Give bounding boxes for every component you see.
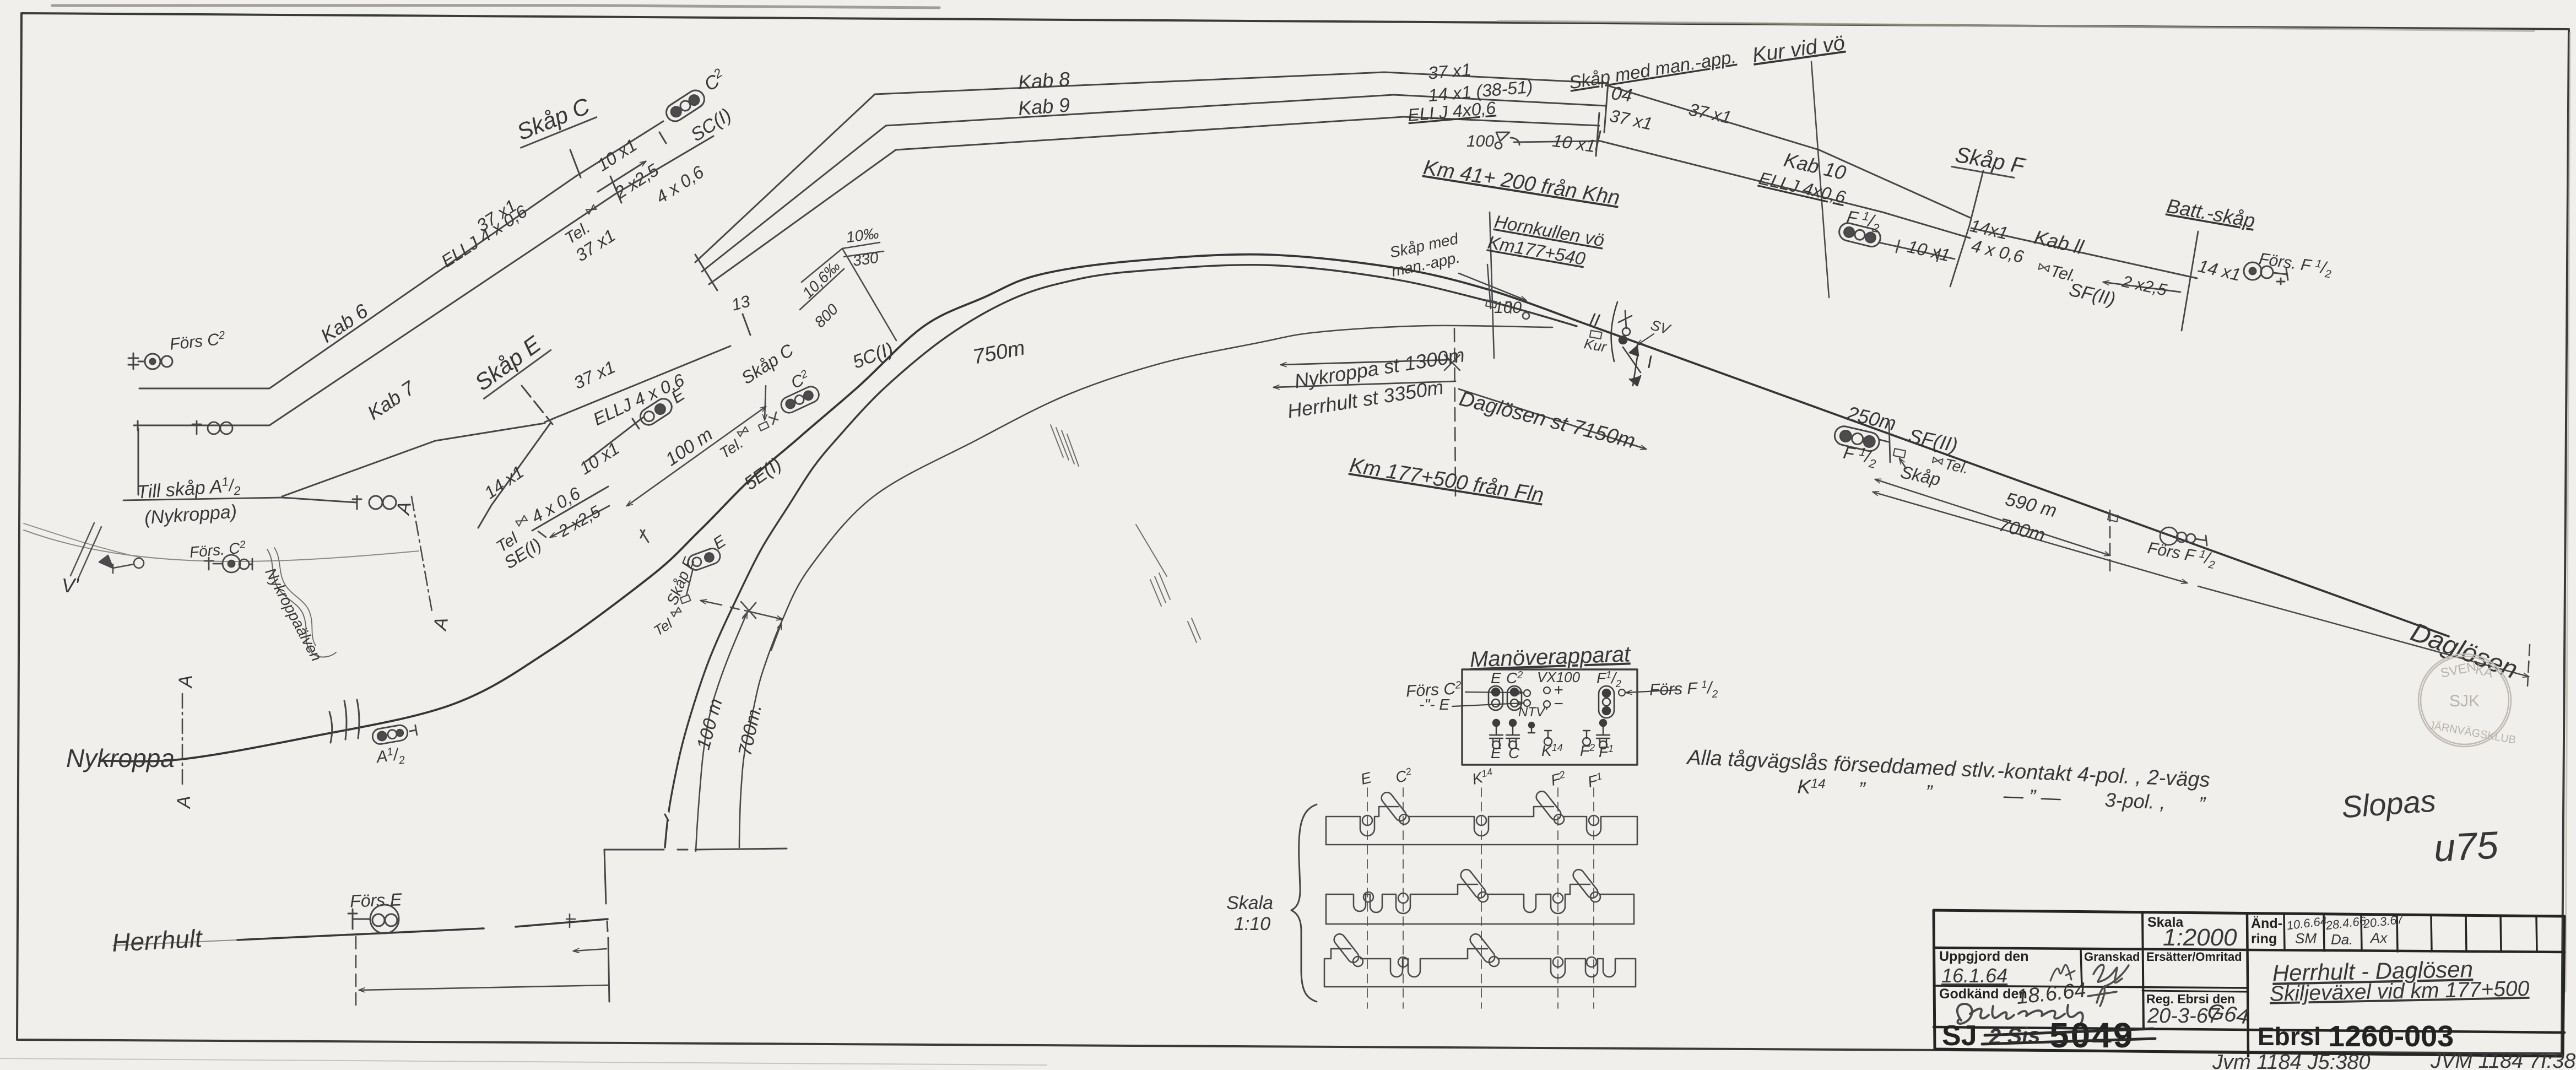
svg-text:Skåp C: Skåp C — [513, 93, 593, 145]
svg-text:Uppgjord den: Uppgjord den — [1939, 949, 2028, 964]
svg-text:2 x2,5: 2 x2,5 — [2120, 272, 2168, 300]
svg-text:18.6.64: 18.6.64 — [2015, 979, 2087, 1009]
svg-text:Km 41+ 200 från Khn: Km 41+ 200 från Khn — [1422, 156, 1621, 210]
svg-text:Jvm 1184 J5:380: Jvm 1184 J5:380 — [2212, 1051, 2371, 1070]
svg-text:5E(I): 5E(I) — [740, 453, 786, 494]
svg-text:37 x1: 37 x1 — [571, 356, 618, 393]
svg-text:SJK: SJK — [2449, 692, 2480, 710]
svg-text:10 x1: 10 x1 — [1551, 131, 1597, 156]
svg-text:Kur: Kur — [1583, 335, 1608, 355]
svg-text:A: A — [429, 615, 452, 633]
svg-text:Ax: Ax — [2369, 930, 2388, 946]
svg-text:K14: K14 — [1470, 766, 1495, 787]
svg-text:SJ: SJ — [1942, 1020, 1977, 1052]
svg-text:1260-003: 1260-003 — [2328, 1020, 2454, 1053]
svg-text:u75: u75 — [2433, 823, 2500, 869]
svg-text:Ersätter/Omritad: Ersätter/Omritad — [2146, 950, 2242, 964]
svg-text:330: 330 — [852, 249, 880, 269]
svg-text:F2: F2 — [1580, 742, 1595, 759]
svg-text:250m: 250m — [1844, 402, 1898, 435]
svg-text:14 x1: 14 x1 — [480, 462, 527, 502]
svg-text:F1: F1 — [1599, 743, 1614, 760]
svg-text:37 x1: 37 x1 — [1427, 60, 1472, 83]
svg-text:E: E — [1359, 769, 1373, 788]
svg-text:Ebrsi: Ebrsi — [2258, 1022, 2321, 1051]
svg-text:Förs C2: Förs C2 — [169, 329, 226, 353]
svg-text:Batt.-skåp: Batt.-skåp — [2165, 194, 2257, 233]
svg-text:−: − — [1554, 695, 1563, 713]
svg-text:Kab ll: Kab ll — [2032, 225, 2086, 258]
svg-text:Nykroppaälven: Nykroppaälven — [262, 565, 325, 664]
svg-text:5C(I): 5C(I) — [849, 338, 896, 373]
svg-text:1:2000: 1:2000 — [2163, 924, 2237, 951]
svg-text:04: 04 — [1610, 83, 1633, 106]
svg-text:Km 177+500 från Fln: Km 177+500 från Fln — [1348, 454, 1545, 507]
svg-text:Skåp C: Skåp C — [738, 339, 797, 388]
svg-text:10 x1: 10 x1 — [576, 438, 623, 478]
svg-text:100: 100 — [1466, 132, 1494, 150]
svg-text:I: I — [1647, 352, 1652, 372]
svg-text:Daglösen st 7150m: Daglösen st 7150m — [1457, 387, 1638, 453]
svg-text:II: II — [1588, 309, 1601, 330]
svg-text:C2: C2 — [1394, 766, 1414, 786]
svg-text:Skala: Skala — [1226, 893, 1273, 914]
svg-text:JVM 1184 7I:380: JVM 1184 7I:380 — [2430, 1050, 2576, 1070]
svg-text:E: E — [710, 532, 730, 553]
svg-text:750m: 750m — [971, 336, 1027, 369]
svg-text:C2: C2 — [788, 368, 812, 392]
svg-text:E: E — [1491, 669, 1501, 687]
svg-text:13: 13 — [729, 292, 752, 315]
svg-text:C2: C2 — [700, 65, 729, 95]
svg-text:A: A — [174, 796, 194, 809]
svg-text:37 x1: 37 x1 — [1608, 105, 1654, 133]
svg-text:F1: F1 — [1586, 770, 1605, 791]
svg-text:Nykroppa: Nykroppa — [66, 744, 175, 772]
svg-text:14 x1: 14 x1 — [2196, 256, 2243, 285]
svg-text:5049: 5049 — [2049, 1015, 2134, 1055]
svg-text:Tel: Tel — [651, 615, 676, 639]
svg-text:A: A — [175, 675, 196, 689]
svg-text:Granskad: Granskad — [2084, 950, 2140, 964]
svg-text:2 Sis: 2 Sis — [1988, 1023, 2041, 1049]
svg-text:Kab 9: Kab 9 — [1018, 93, 1071, 119]
svg-text:700m: 700m — [1996, 514, 2047, 545]
svg-text:K14: K14 — [1541, 742, 1563, 759]
svg-text:A1/2: A1/2 — [374, 744, 406, 770]
svg-text:Skåp med man.-app.: Skåp med man.-app. — [1568, 46, 1738, 93]
svg-text:16.1.64: 16.1.64 — [1941, 964, 2007, 987]
svg-text:Alla tågvägslås förseddamed: Alla tågvägslås förseddamed stlv.-kontak… — [1686, 746, 2211, 792]
svg-text:Kab 7: Kab 7 — [363, 376, 420, 424]
svg-text:100 m: 100 m — [693, 696, 727, 752]
svg-text:800: 800 — [811, 300, 841, 331]
svg-text:SVEN: SVEN — [2439, 659, 2478, 681]
svg-text:Kab 8: Kab 8 — [1018, 67, 1071, 93]
svg-text:Herrhult: Herrhult — [111, 923, 204, 957]
svg-text:C: C — [1508, 744, 1520, 761]
svg-text:Slopas: Slopas — [2340, 783, 2437, 824]
svg-text:10 x1: 10 x1 — [1906, 236, 1952, 266]
svg-text:NTV': NTV' — [1518, 705, 1548, 720]
svg-text:F2: F2 — [1549, 769, 1568, 789]
svg-text:Tel.: Tel. — [1943, 455, 1971, 477]
svg-text:ring: ring — [2251, 931, 2277, 947]
svg-text:Änd-: Änd- — [2251, 916, 2282, 931]
svg-text:Godkänd den: Godkänd den — [1939, 986, 2027, 1002]
svg-text:JÄRNVÄGSKLUB: JÄRNVÄGSKLUB — [2428, 719, 2517, 746]
svg-text:SM: SM — [2295, 930, 2317, 947]
svg-text:(Nykroppa): (Nykroppa) — [144, 501, 237, 528]
svg-text:Kab 6: Kab 6 — [316, 299, 372, 347]
svg-text:SF(II): SF(II) — [1907, 424, 1960, 457]
svg-text:Förs. F 1/2: Förs. F 1/2 — [2258, 250, 2333, 280]
svg-text:C2: C2 — [1506, 669, 1523, 687]
svg-text:SF(II): SF(II) — [2067, 279, 2117, 310]
svg-text:4 x 0,6: 4 x 0,6 — [652, 162, 707, 208]
svg-text:1:10: 1:10 — [1234, 914, 1270, 934]
svg-text:Skåp E: Skåp E — [470, 331, 546, 396]
svg-text:Da.: Da. — [2331, 931, 2353, 948]
svg-text:700m.: 700m. — [734, 702, 766, 758]
svg-text:-"- E: -"- E — [1419, 696, 1449, 713]
svg-text:Skiljeväxel vid km 177+500: Skiljeväxel vid km 177+500 — [2269, 977, 2530, 1006]
svg-text:Manöverapparat: Manöverapparat — [1469, 642, 1632, 672]
svg-text:37 x1: 37 x1 — [1687, 99, 1733, 127]
svg-text:E: E — [1491, 744, 1501, 761]
svg-text:Kur vid vö: Kur vid vö — [1751, 31, 1846, 67]
svg-text:V': V' — [62, 574, 79, 597]
